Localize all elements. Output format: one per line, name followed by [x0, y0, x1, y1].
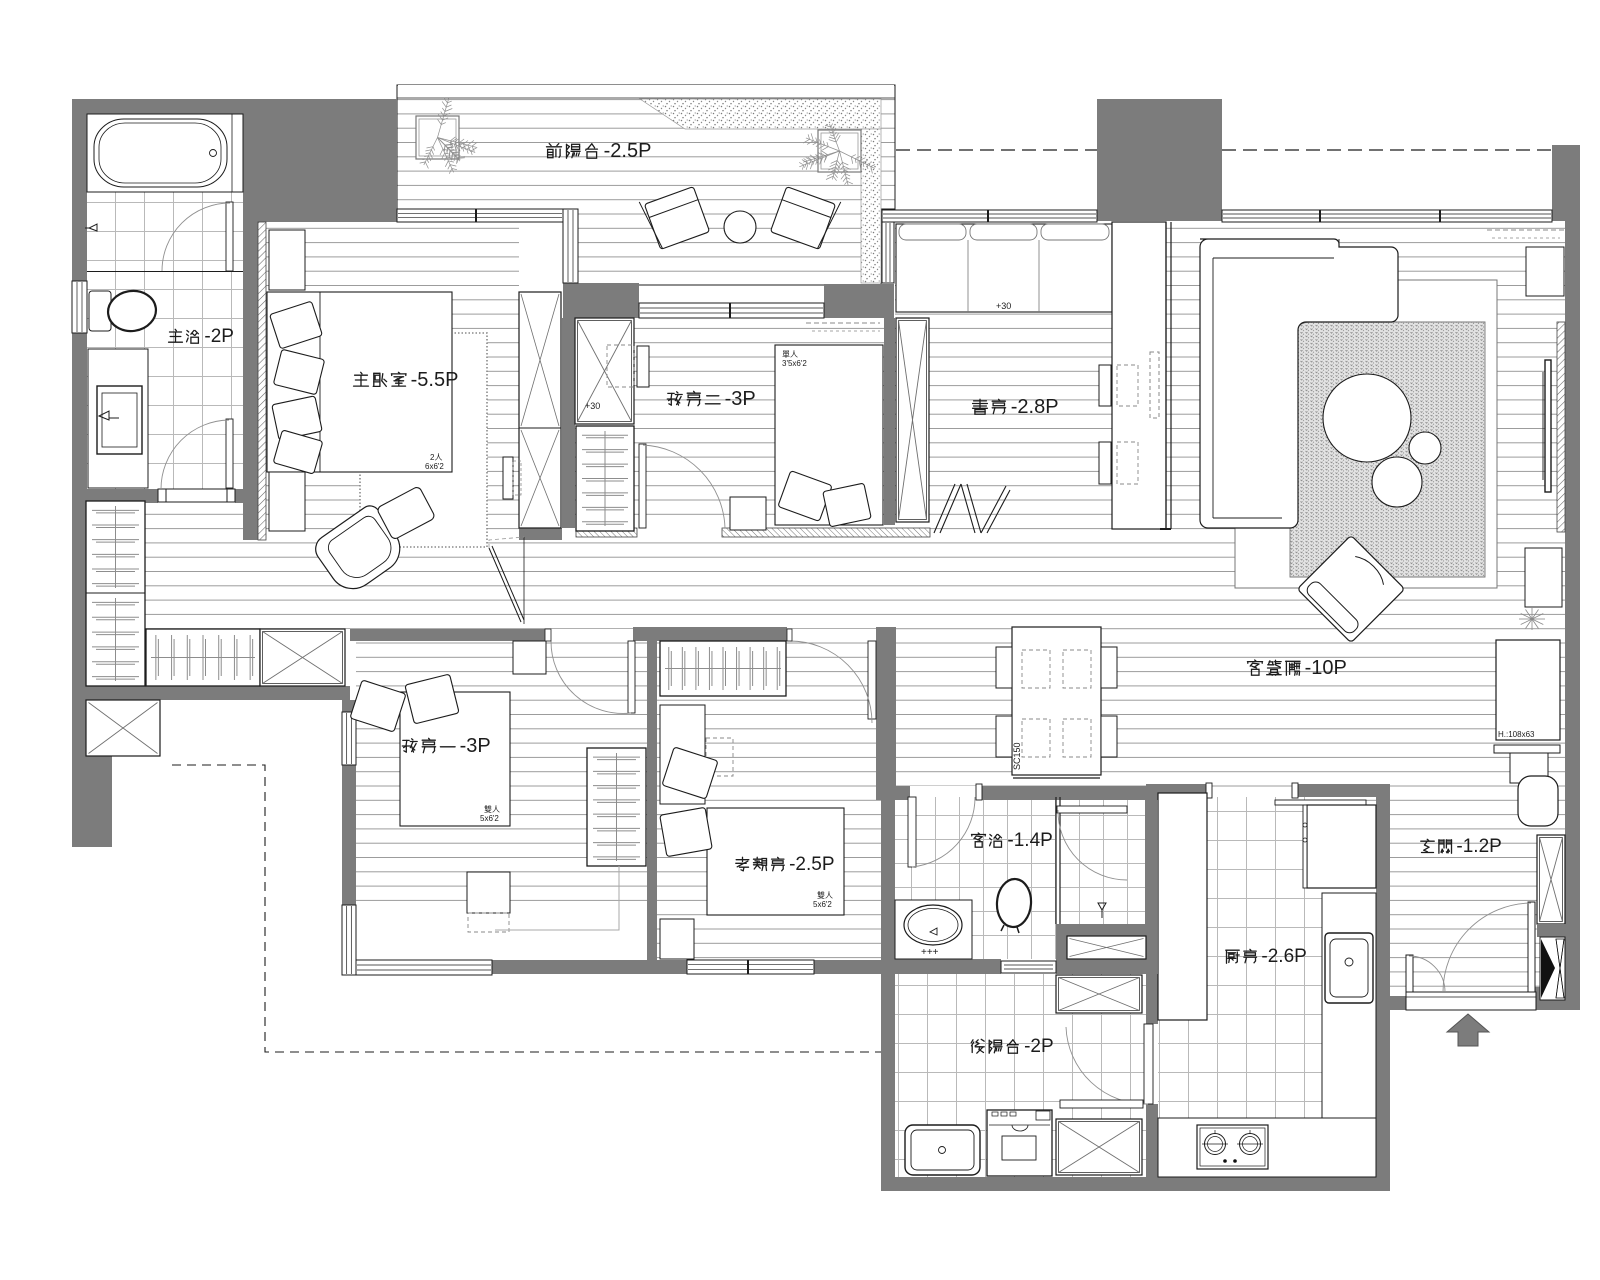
svg-text:-1.4P: -1.4P [1007, 830, 1052, 851]
svg-text:-2.5P: -2.5P [604, 140, 652, 162]
svg-text:-3P: -3P [460, 735, 491, 757]
svg-text:2人: 2人 [430, 453, 442, 462]
svg-text:+++: +++ [921, 947, 939, 958]
svg-text:-2P: -2P [204, 326, 234, 347]
svg-text:-2.6P: -2.6P [1261, 946, 1306, 967]
svg-text:單人: 單人 [782, 350, 798, 359]
svg-text:-3P: -3P [725, 388, 756, 410]
svg-text:5x6'2: 5x6'2 [813, 900, 832, 909]
svg-text:6x6'2: 6x6'2 [425, 462, 444, 471]
svg-text:3'5x6'2: 3'5x6'2 [782, 359, 807, 368]
svg-text:H.:108x63: H.:108x63 [1498, 730, 1535, 739]
svg-text:SC150: SC150 [1012, 742, 1022, 770]
svg-text:雙人: 雙人 [484, 804, 500, 814]
svg-text:+30: +30 [996, 301, 1011, 311]
svg-text:5x6'2: 5x6'2 [480, 814, 499, 823]
svg-text:雙人: 雙人 [817, 890, 833, 900]
svg-text:-2.5P: -2.5P [789, 854, 834, 875]
svg-text:-2.8P: -2.8P [1011, 396, 1059, 418]
svg-text:-1.2P: -1.2P [1456, 836, 1501, 857]
svg-text:-2P: -2P [1024, 1036, 1054, 1057]
svg-text:-10P: -10P [1305, 657, 1347, 679]
svg-text:-5.5P: -5.5P [411, 369, 459, 391]
svg-text:+30: +30 [585, 401, 600, 411]
